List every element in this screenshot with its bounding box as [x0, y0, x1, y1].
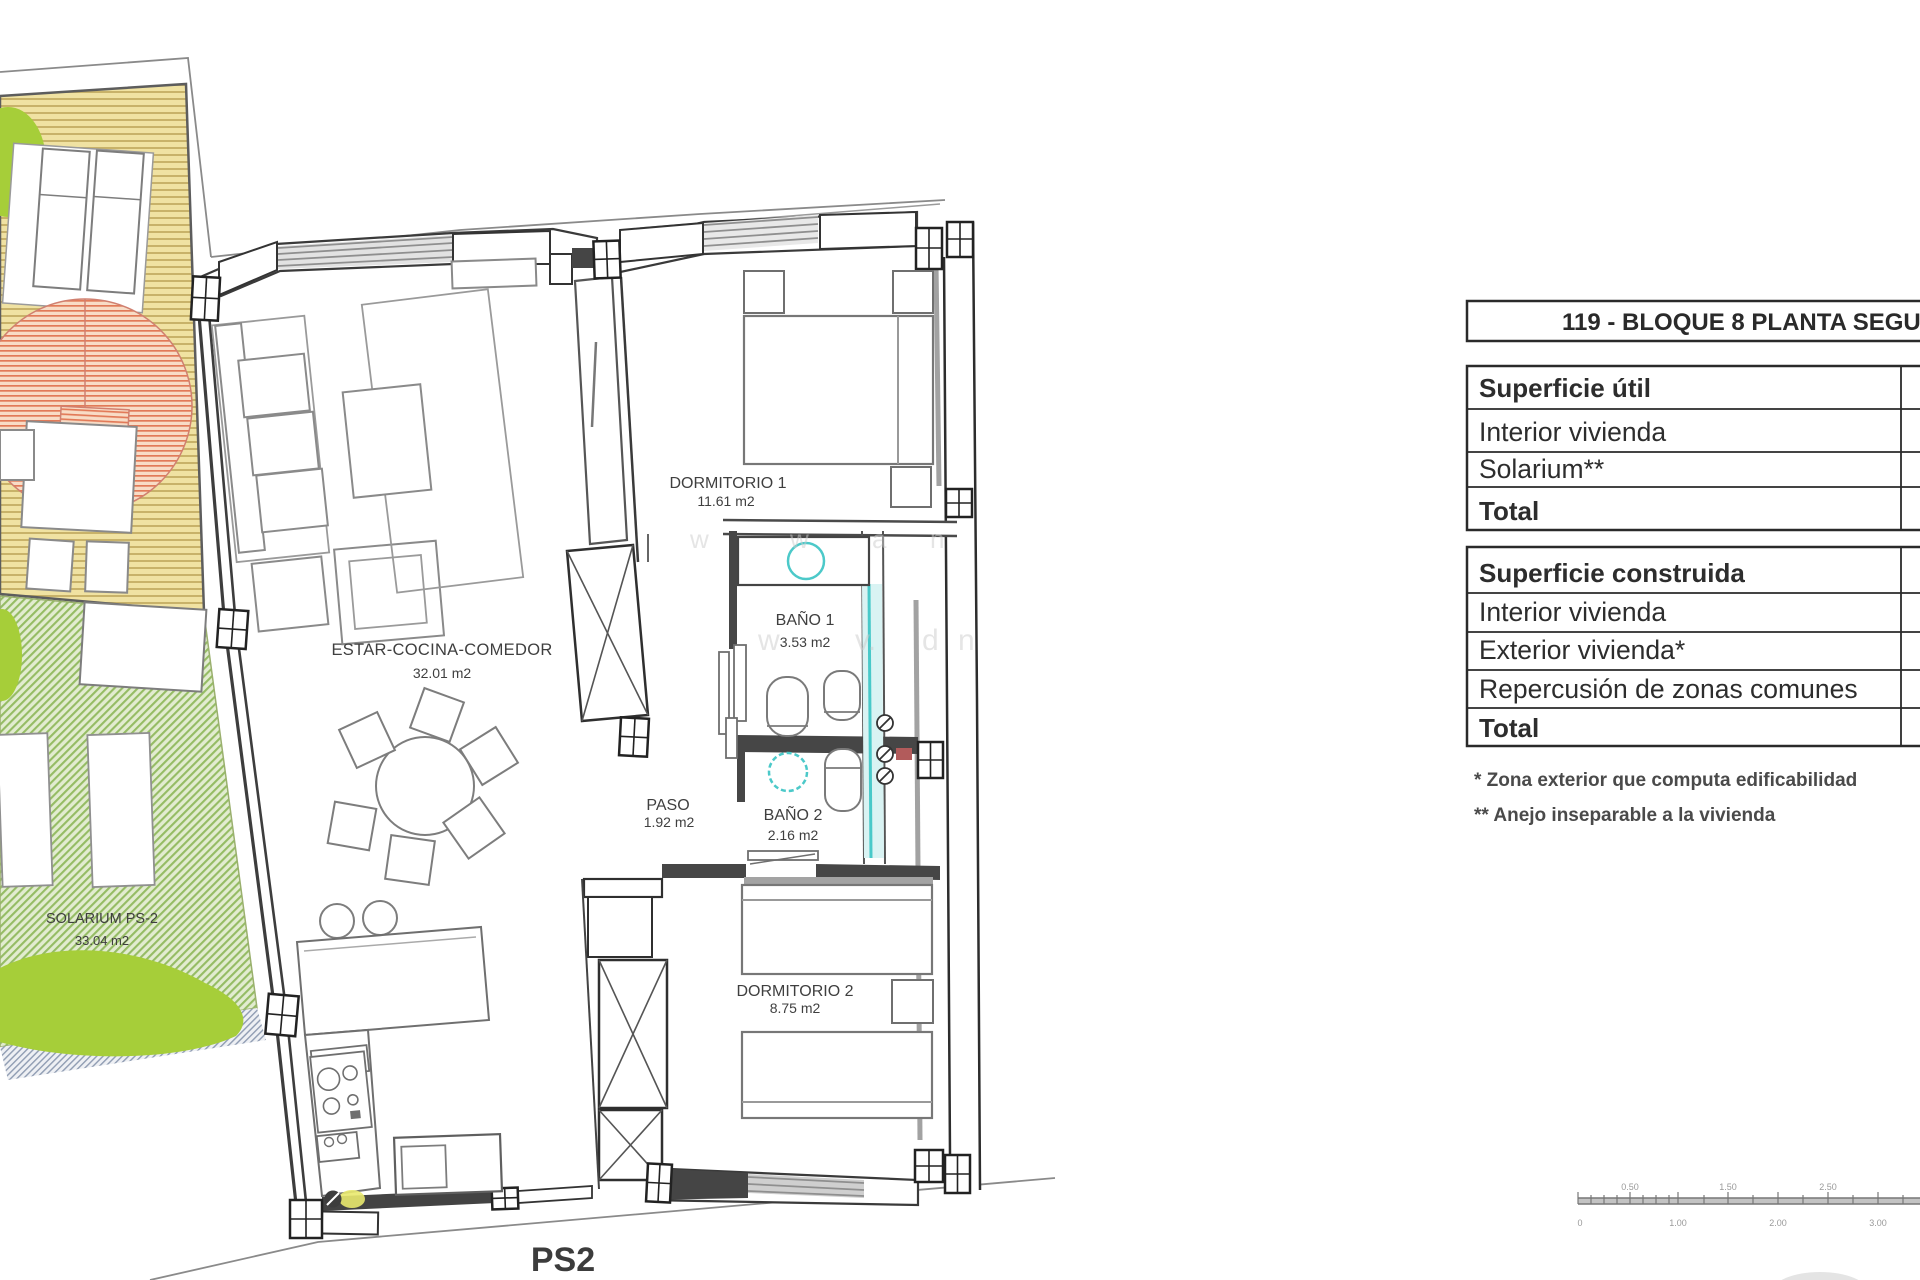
- svg-text:2.16 m2: 2.16 m2: [768, 827, 819, 843]
- svg-text:BAÑO 2: BAÑO 2: [764, 804, 823, 824]
- svg-text:n: n: [930, 524, 944, 554]
- svg-text:11.61 m2: 11.61 m2: [697, 493, 755, 509]
- svg-text:Superficie útil: Superficie útil: [1479, 373, 1651, 403]
- svg-text:0.50: 0.50: [1621, 1182, 1639, 1192]
- svg-text:Superficie construida: Superficie construida: [1479, 558, 1745, 588]
- svg-text:3.53 m2: 3.53 m2: [780, 634, 831, 650]
- svg-text:Solarium**: Solarium**: [1479, 454, 1604, 484]
- svg-text:Total: Total: [1479, 713, 1539, 743]
- svg-text:2.00: 2.00: [1769, 1218, 1787, 1228]
- svg-text:Exterior vivienda*: Exterior vivienda*: [1479, 635, 1685, 665]
- svg-text:w: w: [789, 524, 809, 554]
- svg-text:Total: Total: [1479, 496, 1539, 526]
- svg-text:Repercusión de zonas comunes: Repercusión de zonas comunes: [1479, 674, 1858, 704]
- svg-text:ESTAR-COCINA-COMEDOR: ESTAR-COCINA-COMEDOR: [331, 641, 552, 659]
- svg-text:119 - BLOQUE 8 PLANTA SEGUNDA: 119 - BLOQUE 8 PLANTA SEGUNDA: [1562, 309, 1920, 336]
- svg-text:SOLARIUM PS-2: SOLARIUM PS-2: [46, 911, 158, 927]
- svg-text:* Zona exterior que computa ed: * Zona exterior que computa edificabilid…: [1474, 770, 1857, 791]
- svg-text:32.01 m2: 32.01 m2: [413, 665, 472, 681]
- svg-text:2.50: 2.50: [1819, 1182, 1837, 1192]
- svg-text:Interior vivienda: Interior vivienda: [1479, 417, 1666, 447]
- svg-text:1.92 m2: 1.92 m2: [644, 814, 695, 830]
- svg-text:DORMITORIO 1: DORMITORIO 1: [669, 475, 786, 492]
- svg-text:d: d: [922, 624, 939, 657]
- svg-text:PS2: PS2: [531, 1241, 595, 1279]
- svg-text:** Anejo inseparable a la vivi: ** Anejo inseparable a la vivienda: [1474, 805, 1776, 826]
- svg-text:v.: v.: [855, 624, 876, 657]
- svg-text:3.00: 3.00: [1869, 1218, 1887, 1228]
- svg-text:1.50: 1.50: [1719, 1182, 1737, 1192]
- svg-text:n: n: [958, 624, 975, 657]
- svg-text:33.04 m2: 33.04 m2: [75, 933, 129, 948]
- svg-text:a: a: [872, 524, 887, 554]
- svg-text:0: 0: [1577, 1218, 1582, 1228]
- svg-text:w: w: [689, 524, 709, 554]
- svg-text:DORMITORIO 2: DORMITORIO 2: [736, 983, 853, 1000]
- svg-text:Interior vivienda: Interior vivienda: [1479, 597, 1666, 627]
- svg-text:BAÑO 1: BAÑO 1: [776, 609, 835, 629]
- svg-text:PASO: PASO: [646, 797, 689, 814]
- svg-text:1.00: 1.00: [1669, 1218, 1687, 1228]
- svg-text:8.75 m2: 8.75 m2: [770, 1000, 821, 1016]
